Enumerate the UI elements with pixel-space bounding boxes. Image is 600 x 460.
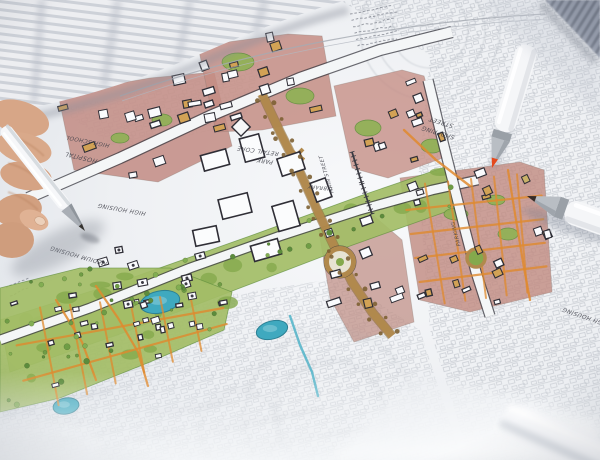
photo-masterplan-scene: Close-up photograph of a hand-drawn, han… [0,0,600,460]
photo-vignette [0,0,600,460]
scene-canvas: HIGH SCHOOLHOSPITALHIGH HOUSINGMEDIUM HO… [0,0,600,460]
